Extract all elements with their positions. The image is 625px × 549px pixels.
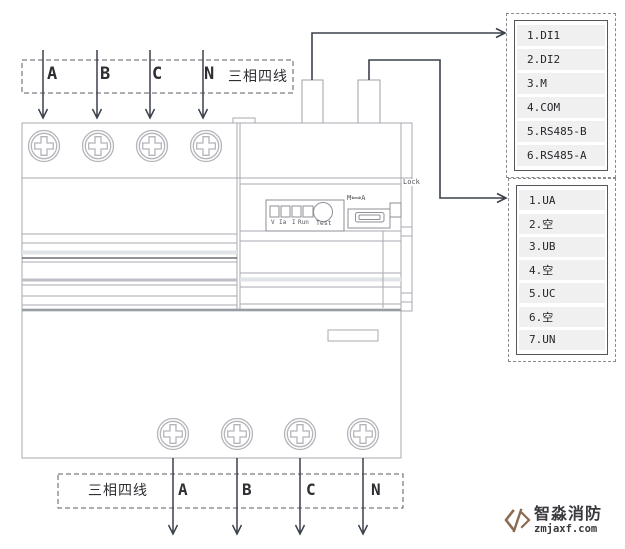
- mode-switch-label: M⟺A: [347, 195, 365, 202]
- brand-logo: 智淼消防 zmjaxf.com: [504, 505, 602, 536]
- terminal-row: 2.DI2: [517, 49, 605, 70]
- brand-name: 智淼消防: [534, 505, 602, 523]
- bottom-phase-label-b: B: [242, 482, 252, 498]
- terminal-box-signal: 1.DI1 2.DI2 3.M 4.COM 5.RS485-B 6.RS485-…: [506, 13, 616, 178]
- terminal-box-signal-inner: 1.DI1 2.DI2 3.M 4.COM 5.RS485-B 6.RS485-…: [514, 20, 608, 171]
- top-connector-tabs: [302, 80, 380, 123]
- lock-label: Lock: [402, 179, 421, 186]
- terminal-row: 2.空: [519, 214, 605, 234]
- terminal-row: 5.RS485-B: [517, 121, 605, 142]
- terminal-row: 6.RS485-A: [517, 145, 605, 166]
- top-wiring-system-label: 三相四线: [228, 70, 288, 84]
- terminal-row: 1.UA: [519, 190, 605, 210]
- device-body: [22, 118, 412, 458]
- top-phase-label-c: C: [152, 66, 162, 83]
- top-phase-label-b: B: [100, 66, 110, 83]
- terminal-row: 4.COM: [517, 97, 605, 118]
- terminal-row: 5.UC: [519, 283, 605, 303]
- top-phase-label-n: N: [204, 66, 214, 83]
- terminal-row: 7.UN: [519, 330, 605, 350]
- terminal-row: 3.M: [517, 73, 605, 94]
- brand-logo-text: 智淼消防 zmjaxf.com: [534, 505, 602, 535]
- terminal-row: 4.空: [519, 260, 605, 280]
- terminal-box-voltage: 1.UA 2.空 3.UB 4.空 5.UC 6.空 7.UN: [508, 178, 616, 362]
- test-button-label: Test: [316, 220, 332, 227]
- wiring-diagram-page: A B C N 三相四线 三相四线 A B C N V Ia I Run Tes…: [0, 0, 625, 549]
- bottom-phase-arrows: [169, 458, 368, 534]
- bottom-wiring-system-label: 三相四线: [88, 484, 148, 498]
- brand-logo-icon: [504, 505, 531, 536]
- bottom-phase-label-a: A: [178, 482, 188, 498]
- terminal-box-voltage-inner: 1.UA 2.空 3.UB 4.空 5.UC 6.空 7.UN: [516, 185, 608, 355]
- top-phase-label-a: A: [47, 66, 57, 83]
- terminal-row: 3.UB: [519, 237, 605, 257]
- indicator-label-ia: Ia: [279, 220, 286, 226]
- indicator-label-i: I: [292, 220, 296, 226]
- bottom-phase-label-n: N: [371, 482, 381, 498]
- terminal-row: 6.空: [519, 307, 605, 327]
- bottom-phase-label-c: C: [306, 482, 316, 498]
- terminal-row: 1.DI1: [517, 25, 605, 46]
- indicator-label-run: Run: [298, 220, 309, 226]
- indicator-label-v: V: [271, 220, 275, 226]
- brand-website: zmjaxf.com: [534, 523, 602, 536]
